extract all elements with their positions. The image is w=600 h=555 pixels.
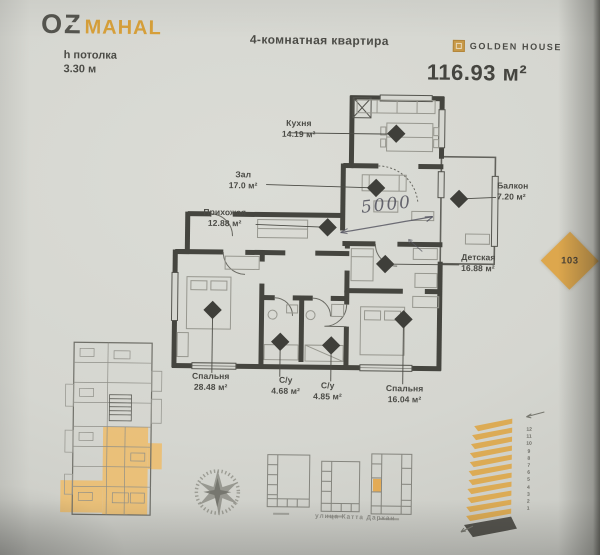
room-label-bathroom2: С/у 4.85 м² xyxy=(304,380,350,403)
room-area: 14.19 м² xyxy=(282,129,316,139)
site-block-2 xyxy=(321,461,360,511)
miniplan-core xyxy=(109,395,131,421)
room-area: 4.68 м² xyxy=(271,386,300,396)
apartment-number-badge: 103 xyxy=(541,232,599,290)
floorplate-miniplan xyxy=(52,334,169,535)
apartment-type-title: 4-комнатная квартира xyxy=(250,32,389,48)
building-elevation xyxy=(459,404,561,545)
developer-name: GOLDEN HOUSE xyxy=(470,41,562,52)
brand-oz: OZ xyxy=(41,9,83,40)
room-name: С/у xyxy=(279,375,293,385)
room-label-bedroom1: Спальня 28.48 м² xyxy=(177,371,245,394)
scanned-floorplan-page: OZMAHAL h потолка 3.30 м 4-комнатная ква… xyxy=(0,0,600,555)
room-area: 7.20 м² xyxy=(497,191,526,201)
apartment-number: 103 xyxy=(561,255,578,266)
room-name: Детская xyxy=(461,252,495,262)
handwritten-dimension: 5000 xyxy=(334,196,445,248)
miniplan-highlight xyxy=(60,426,162,515)
shaft-hatch xyxy=(353,98,371,118)
room-label-balcony: Балкон 7.20 м² xyxy=(497,180,557,203)
page-edge-shadow xyxy=(593,0,600,555)
room-area: 16.88 м² xyxy=(461,263,495,273)
balcony-outline xyxy=(440,157,495,265)
room-name: Прихожая xyxy=(203,207,246,218)
brand-logo: OZMAHAL xyxy=(41,9,162,41)
room-area: 4.85 м² xyxy=(313,391,342,401)
room-area: 17.0 м² xyxy=(229,180,258,190)
room-name: Спальня xyxy=(386,383,424,393)
room-name: Балкон xyxy=(497,180,528,190)
room-area: 16.04 м² xyxy=(388,394,422,404)
room-label-bedroom2: Спальня 16.04 м² xyxy=(370,383,438,406)
room-label-bathroom1: С/у 4.68 м² xyxy=(263,375,309,398)
page-content: OZMAHAL h потолка 3.30 м 4-комнатная ква… xyxy=(0,0,600,555)
ceiling-value: 3.30 м xyxy=(63,62,116,77)
ceiling-label: h потолка xyxy=(64,48,117,63)
room-area: 12.88 м² xyxy=(208,218,242,228)
room-label-living: Зал 17.0 м² xyxy=(214,169,272,192)
room-label-kids: Детская 16.88 м² xyxy=(461,252,523,275)
ceiling-height: h потолка 3.30 м xyxy=(63,48,117,77)
golden-house-icon xyxy=(453,40,465,52)
room-name: Спальня xyxy=(192,371,230,381)
developer-logo: GOLDEN HOUSE xyxy=(453,40,562,53)
elevation-slabs xyxy=(466,418,512,522)
room-label-kitchen: Кухня 14.19 м² xyxy=(268,118,330,141)
floor-number: 1 xyxy=(521,506,535,513)
site-block-1 xyxy=(267,455,310,508)
brand-mahal: MAHAL xyxy=(84,16,161,39)
room-name: Зал xyxy=(235,169,251,179)
room-area: 28.48 м² xyxy=(194,382,228,392)
room-name: Кухня xyxy=(286,118,311,128)
room-name: С/у xyxy=(321,380,335,390)
compass-rose-icon xyxy=(189,461,248,524)
floor-number-list: 12 11 10 9 8 7 6 5 4 3 2 1 xyxy=(521,427,536,514)
room-label-entry: Прихожая 12.88 м² xyxy=(189,207,261,230)
site-highlight-unit xyxy=(373,479,381,492)
